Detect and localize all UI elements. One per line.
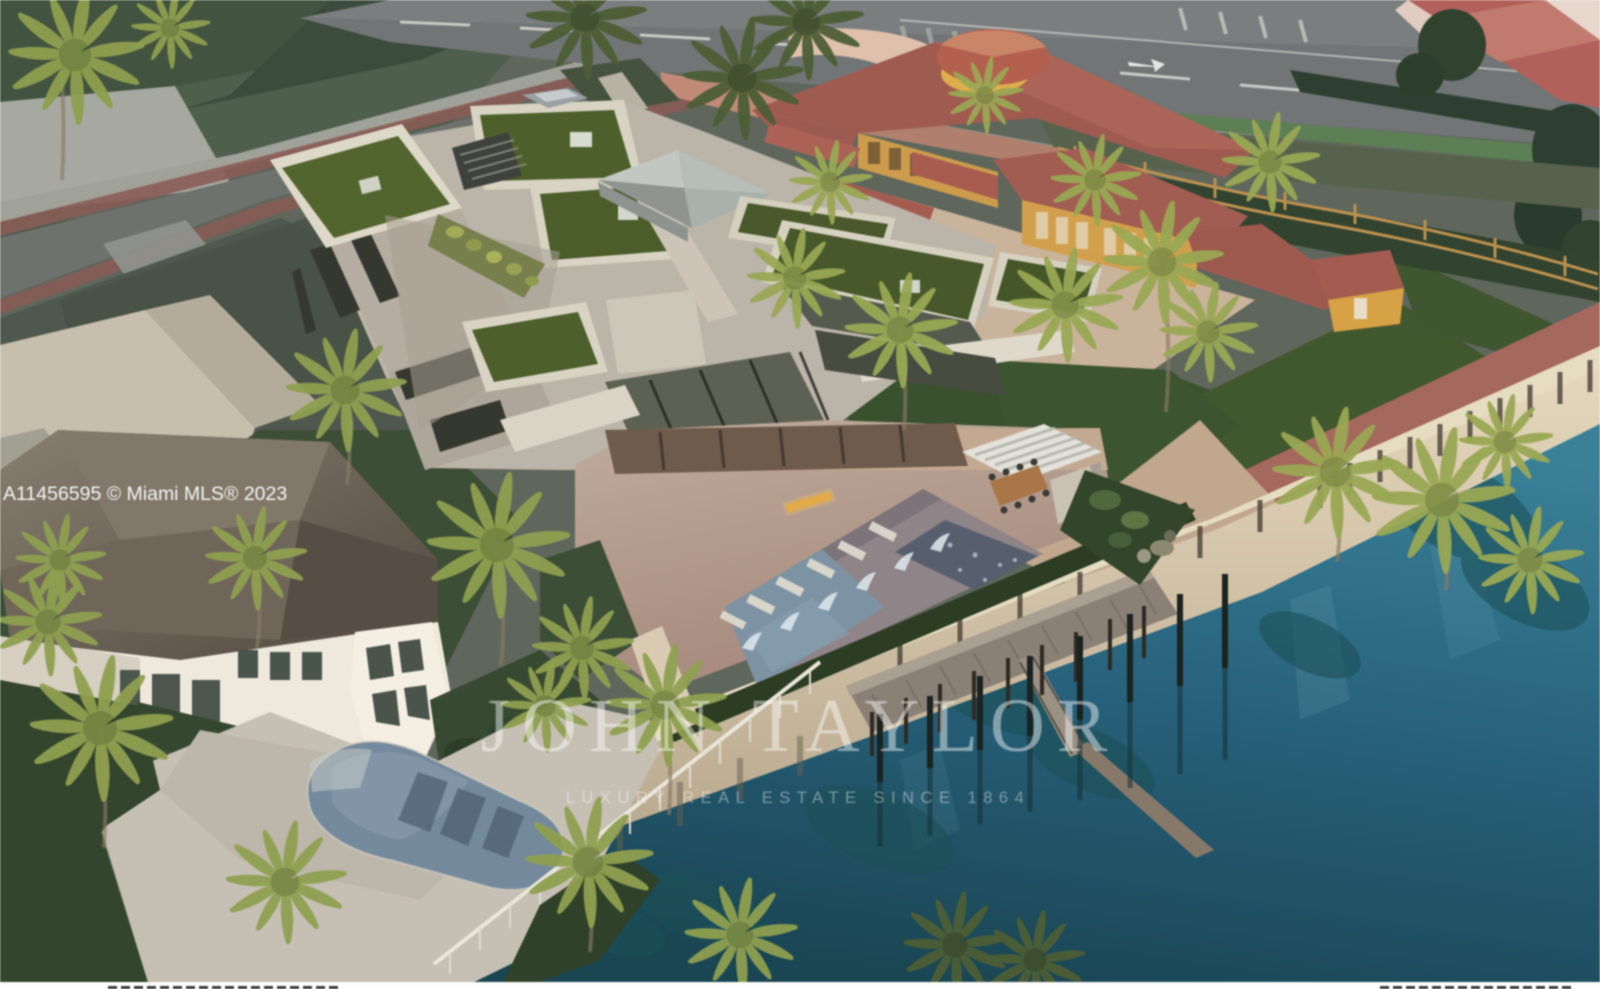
- svg-text:JOHN TAYLOR: JOHN TAYLOR: [481, 684, 1120, 768]
- svg-text:LUXURY REAL ESTATE SINCE 1864: LUXURY REAL ESTATE SINCE 1864: [566, 789, 1031, 807]
- svg-text:A11456595 © Miami MLS® 2023: A11456595 © Miami MLS® 2023: [3, 483, 287, 505]
